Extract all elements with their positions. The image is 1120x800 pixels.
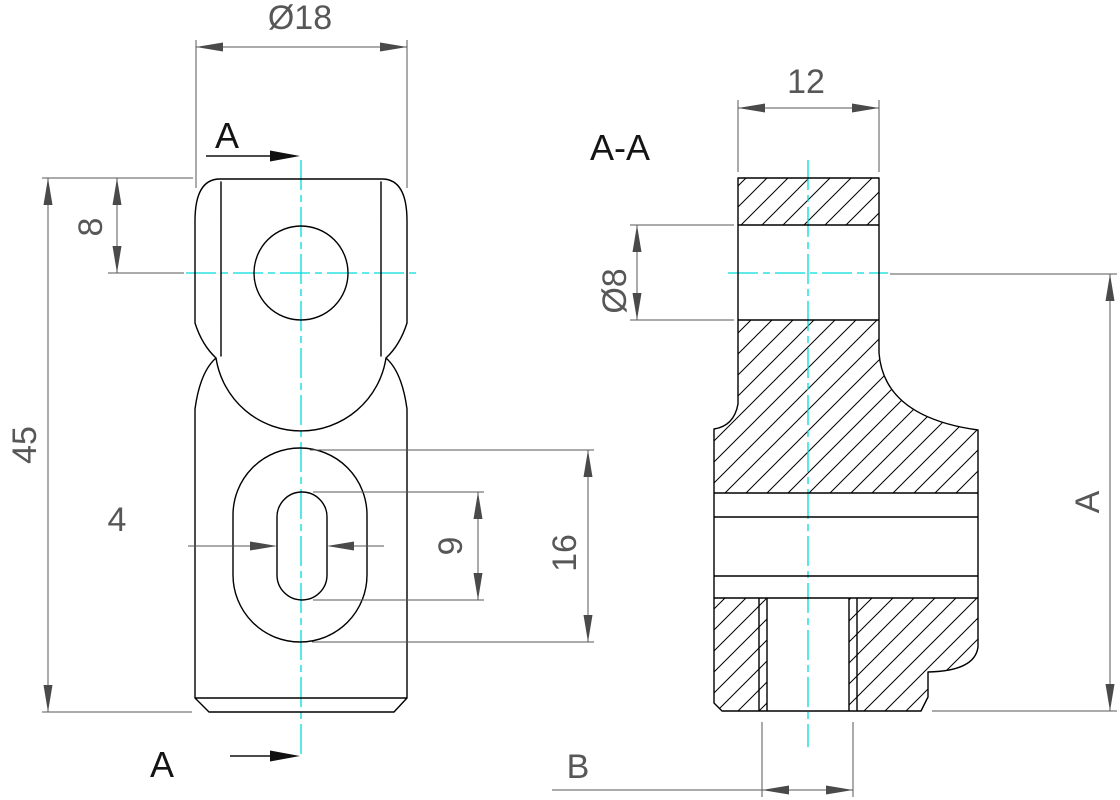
section-view: A-A 12 Ø8 [552, 63, 1117, 797]
dim-label-12: 12 [787, 63, 825, 101]
cutting-plane-bottom: A [150, 744, 300, 785]
front-slot-obround [277, 492, 327, 600]
front-view: Ø18 45 8 4 9 [6, 0, 594, 785]
drawing-canvas: Ø18 45 8 4 9 [0, 0, 1120, 800]
dim-depth: 12 [738, 63, 879, 172]
section-title: A-A [590, 127, 650, 168]
dim-label-45: 45 [6, 426, 44, 464]
dim-slot-width: 4 [108, 501, 384, 551]
dim-label-4: 4 [108, 501, 127, 539]
dim-label-B: B [567, 748, 590, 786]
dim-label-8: 8 [72, 218, 110, 237]
dim-boss-diameter: Ø18 [196, 0, 407, 188]
dim-hole-diameter: Ø8 [596, 225, 734, 320]
dim-label-A: A [1069, 490, 1107, 513]
dim-label-d18: Ø18 [268, 0, 332, 37]
cutting-plane-top: A [206, 115, 300, 162]
technical-drawing: Ø18 45 8 4 9 [0, 0, 1120, 800]
dim-label-d8: Ø8 [596, 268, 634, 313]
section-hatching [714, 178, 978, 711]
dim-total-height: 45 [6, 178, 193, 712]
dim-hole-offset: 8 [72, 178, 184, 273]
dim-label-9: 9 [432, 537, 470, 556]
cut-label-bottom: A [150, 744, 174, 785]
cut-label-top: A [215, 115, 239, 156]
dim-label-16: 16 [546, 534, 584, 572]
